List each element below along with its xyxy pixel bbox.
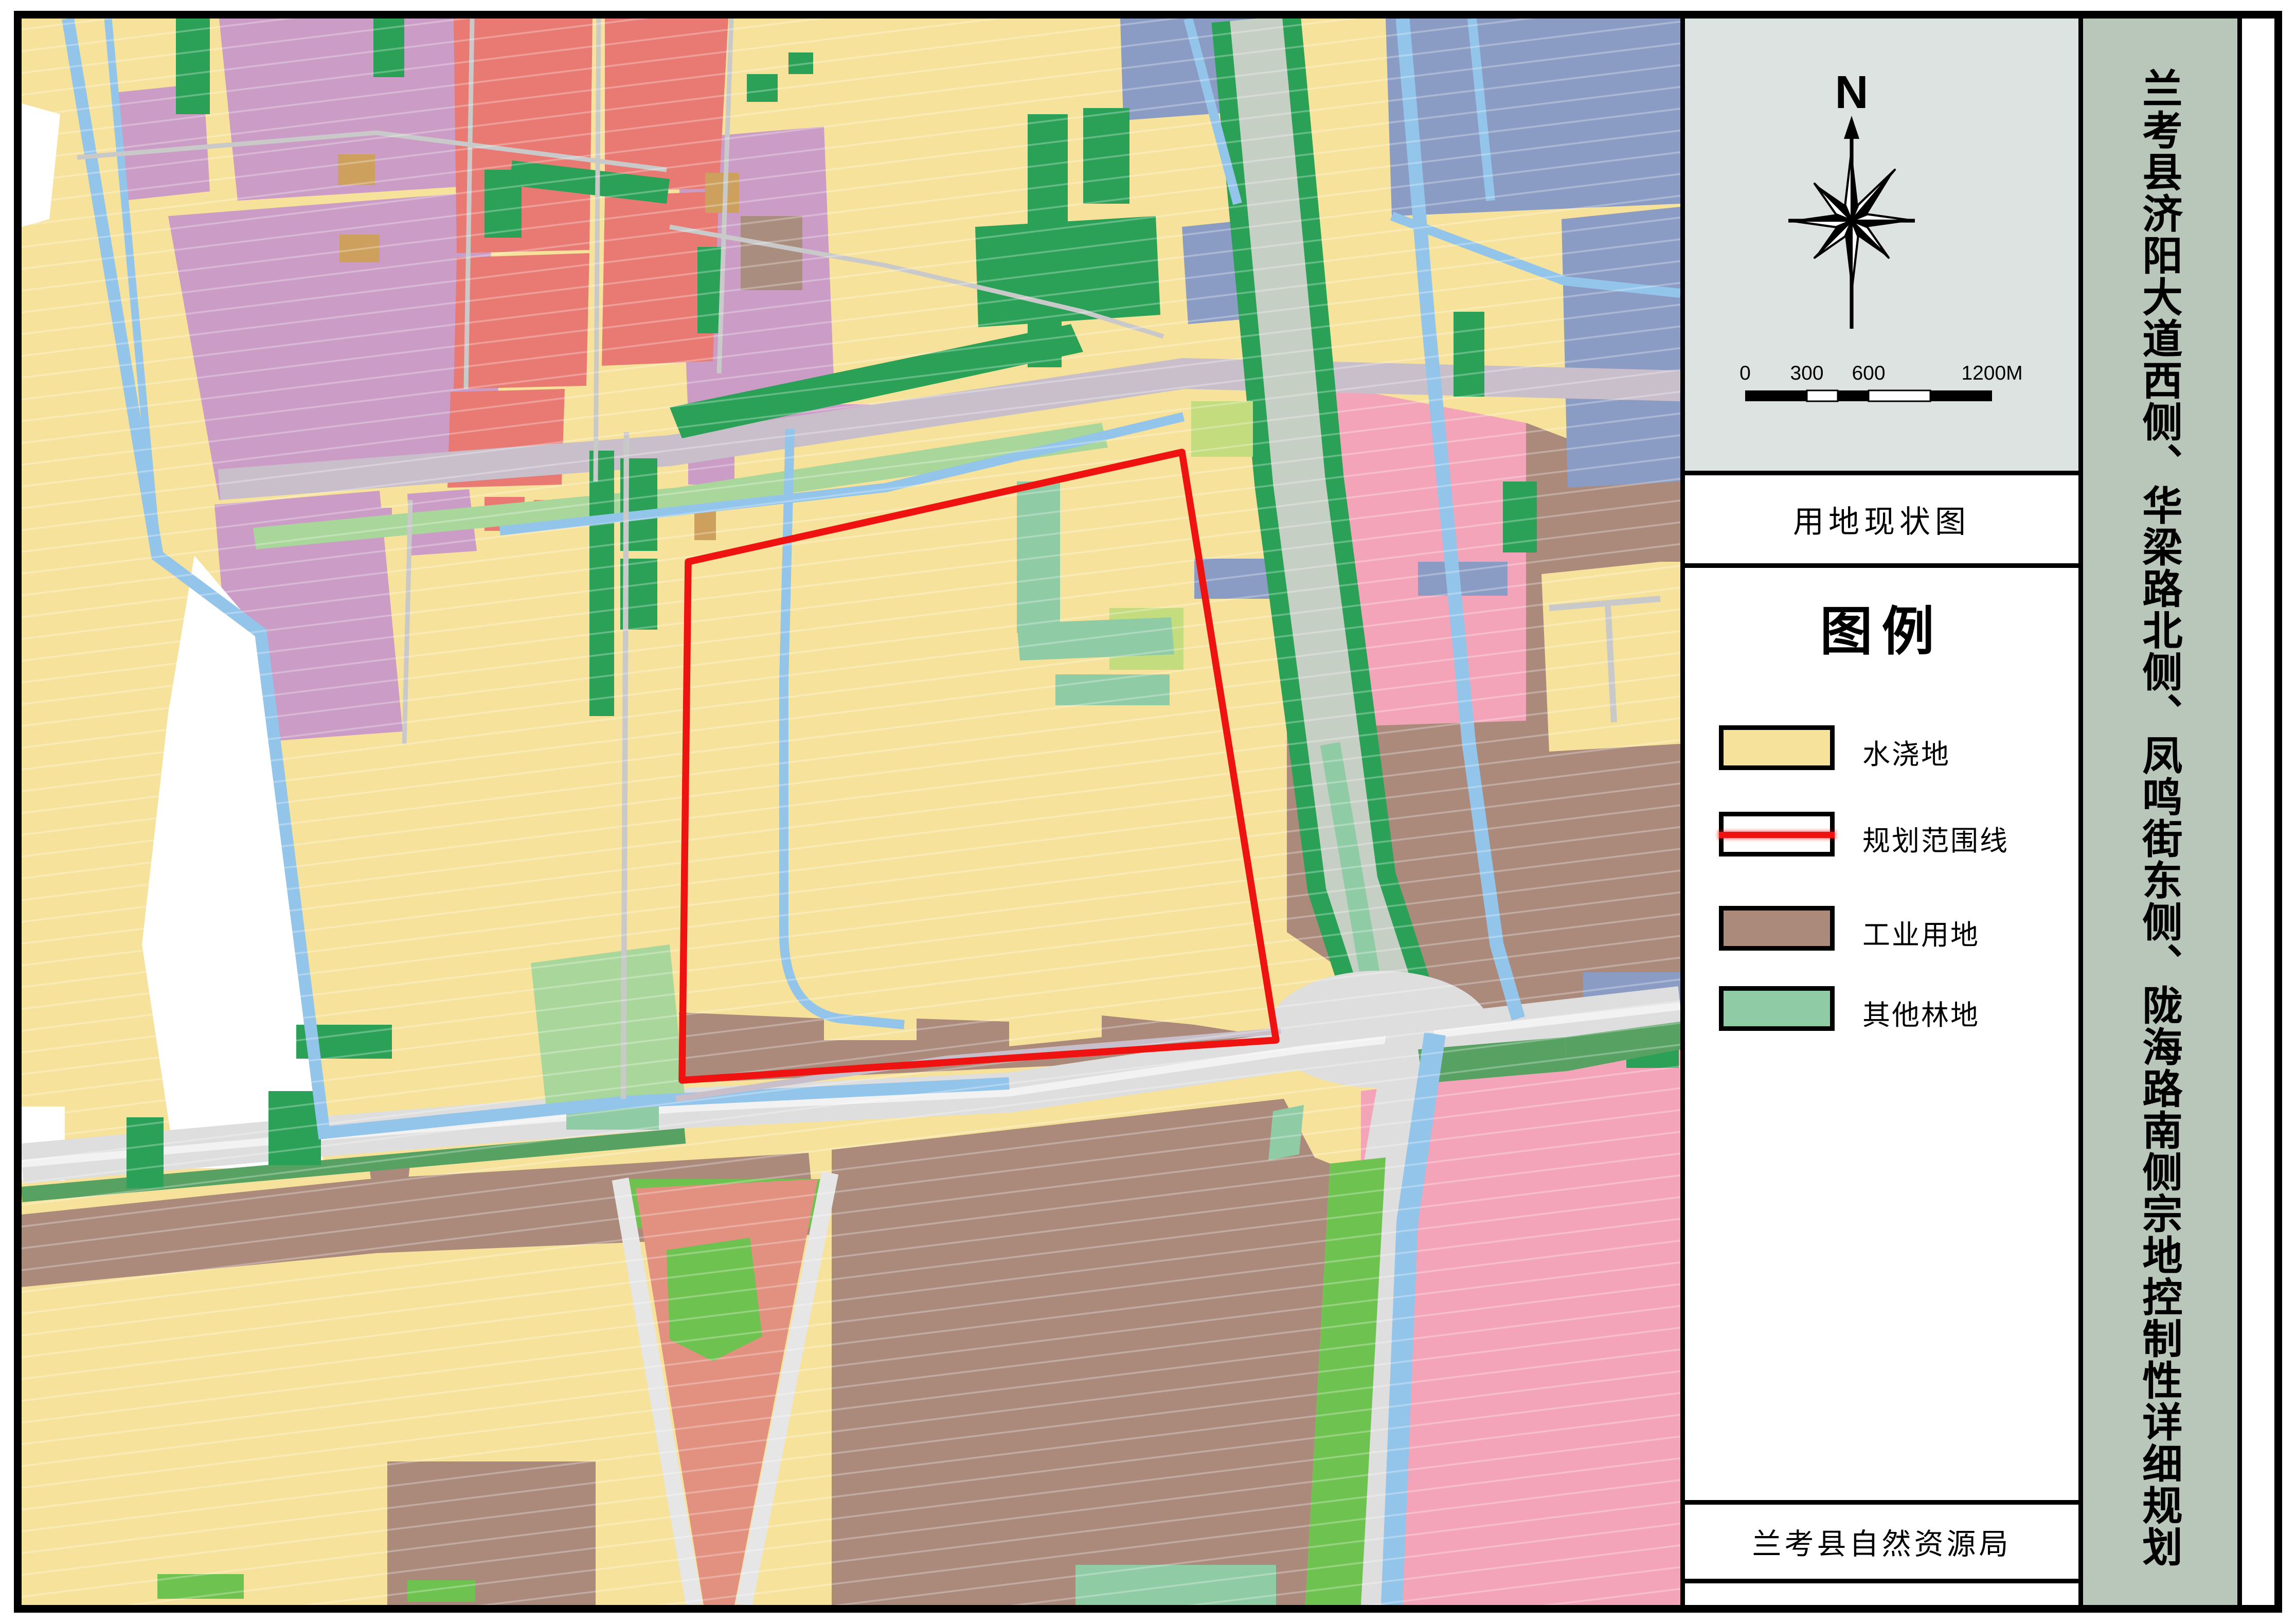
- plan-title-vertical: 兰考县济阳大道西侧、华梁路北侧、凤鸣街东侧、陇海路南侧宗地控制性详细规划: [2086, 19, 2234, 1599]
- industrial-land-swatch: [1719, 906, 1835, 951]
- legend-title: 图例: [1685, 568, 2078, 665]
- compass-scale-panel: N: [1685, 19, 2078, 475]
- legend-item-boundary: 规划范围线: [1685, 812, 2078, 866]
- irrigated-land-swatch: [1719, 725, 1835, 770]
- svg-text:600: 600: [1852, 362, 1885, 384]
- svg-text:300: 300: [1790, 362, 1823, 384]
- field-texture: [22, 19, 1680, 1605]
- other-forest-swatch: [1719, 986, 1835, 1031]
- page: N: [0, 0, 2296, 1624]
- planning-boundary-swatch: [1719, 812, 1835, 856]
- compass-and-scalebar: N: [1685, 19, 2078, 471]
- boundary-line-sample: [1719, 831, 1835, 837]
- compass-rose-icon: [1788, 116, 1915, 329]
- map-sheet-frame: N: [14, 11, 2282, 1613]
- map-type-title: 用地现状图: [1685, 475, 2078, 568]
- north-label: N: [1835, 67, 1869, 118]
- legend-item-forest: 其他林地: [1685, 986, 2078, 1040]
- svg-text:0: 0: [1739, 362, 1751, 384]
- sidebar: N: [1680, 19, 2083, 1605]
- legend-item-irrigated: 水浇地: [1685, 725, 2078, 779]
- legend-item-industrial: 工业用地: [1685, 906, 2078, 960]
- scale-bar: 0 300 600 1200M: [1739, 362, 2022, 401]
- legend: 图例 水浇地 规划范围线 工业用地: [1685, 568, 2078, 1500]
- title-strip: 兰考县济阳大道西侧、华梁路北侧、凤鸣街东侧、陇海路南侧宗地控制性详细规划: [2083, 19, 2242, 1605]
- svg-text:1200M: 1200M: [1961, 362, 2022, 384]
- landuse-map-canvas: [22, 19, 1680, 1605]
- agency-title: 兰考县自然资源局: [1685, 1500, 2078, 1583]
